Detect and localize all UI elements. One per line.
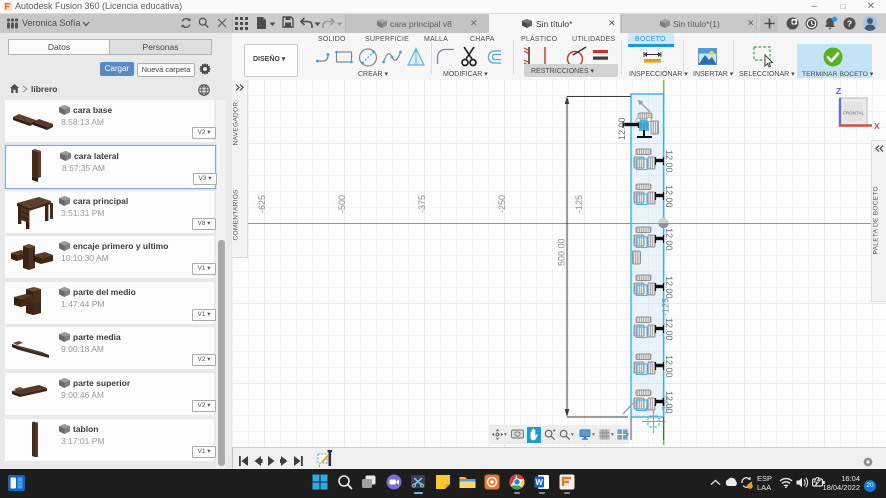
svg-text:12.00: 12.00: [664, 150, 674, 173]
svg-text:-375: -375: [417, 195, 427, 213]
svg-text:12.00: 12.00: [664, 391, 674, 414]
svg-text:12.00: 12.00: [664, 276, 674, 299]
svg-text:-625: -625: [257, 195, 267, 213]
svg-text:Z: Z: [836, 86, 841, 96]
svg-text:12.00: 12.00: [664, 185, 674, 208]
svg-text:12.00: 12.00: [617, 117, 627, 140]
svg-text:12.00: 12.00: [664, 318, 674, 341]
svg-text:W: W: [535, 478, 543, 487]
svg-text:500.00: 500.00: [557, 238, 567, 266]
svg-text:12.00: 12.00: [664, 355, 674, 378]
svg-text:FRONTAL: FRONTAL: [843, 111, 865, 116]
svg-text:12.00: 12.00: [664, 228, 674, 251]
svg-text:X: X: [874, 121, 880, 131]
svg-text:?: ?: [847, 18, 852, 28]
svg-text:-500: -500: [337, 195, 347, 213]
svg-text:-250: -250: [497, 195, 507, 213]
svg-text:-125: -125: [574, 195, 584, 213]
